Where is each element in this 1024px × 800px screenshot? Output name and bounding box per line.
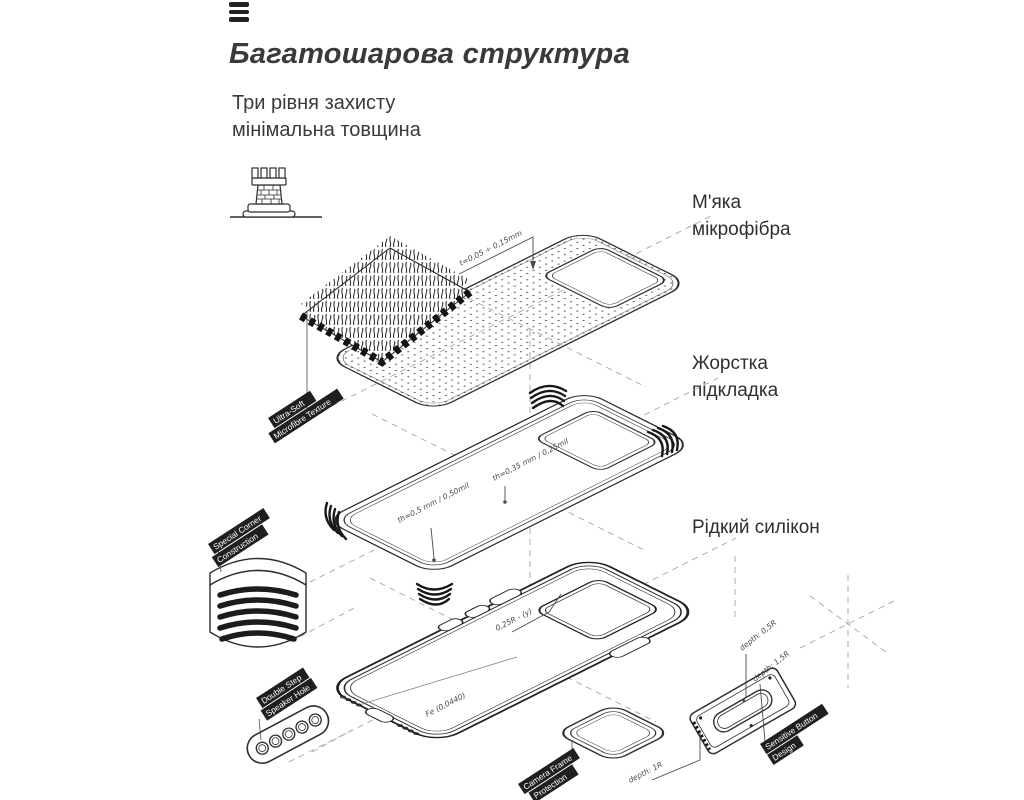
annotation-camera-depth: depth: 1R bbox=[627, 760, 664, 785]
detail-speaker-holes bbox=[242, 701, 334, 769]
annotation-button-depth-outer: depth: 0,5R bbox=[738, 618, 779, 652]
castle-tower-icon bbox=[230, 168, 322, 217]
feature-tag-camera-frame: Camera Frame Protection bbox=[518, 748, 587, 800]
detail-corner-bumper bbox=[210, 559, 306, 648]
exploded-diagram: t=0,05 ÷ 0,15mm th=0,35 mm / 0,25mil th=… bbox=[0, 0, 1024, 800]
feature-tag-ultra-soft: Ultra-Soft Microfibre Texture bbox=[261, 378, 343, 444]
infographic-canvas: Багатошарова структура Три рівня захисту… bbox=[0, 0, 1024, 800]
annotation-microfiber-thickness: t=0,05 ÷ 0,15mm bbox=[458, 228, 524, 267]
